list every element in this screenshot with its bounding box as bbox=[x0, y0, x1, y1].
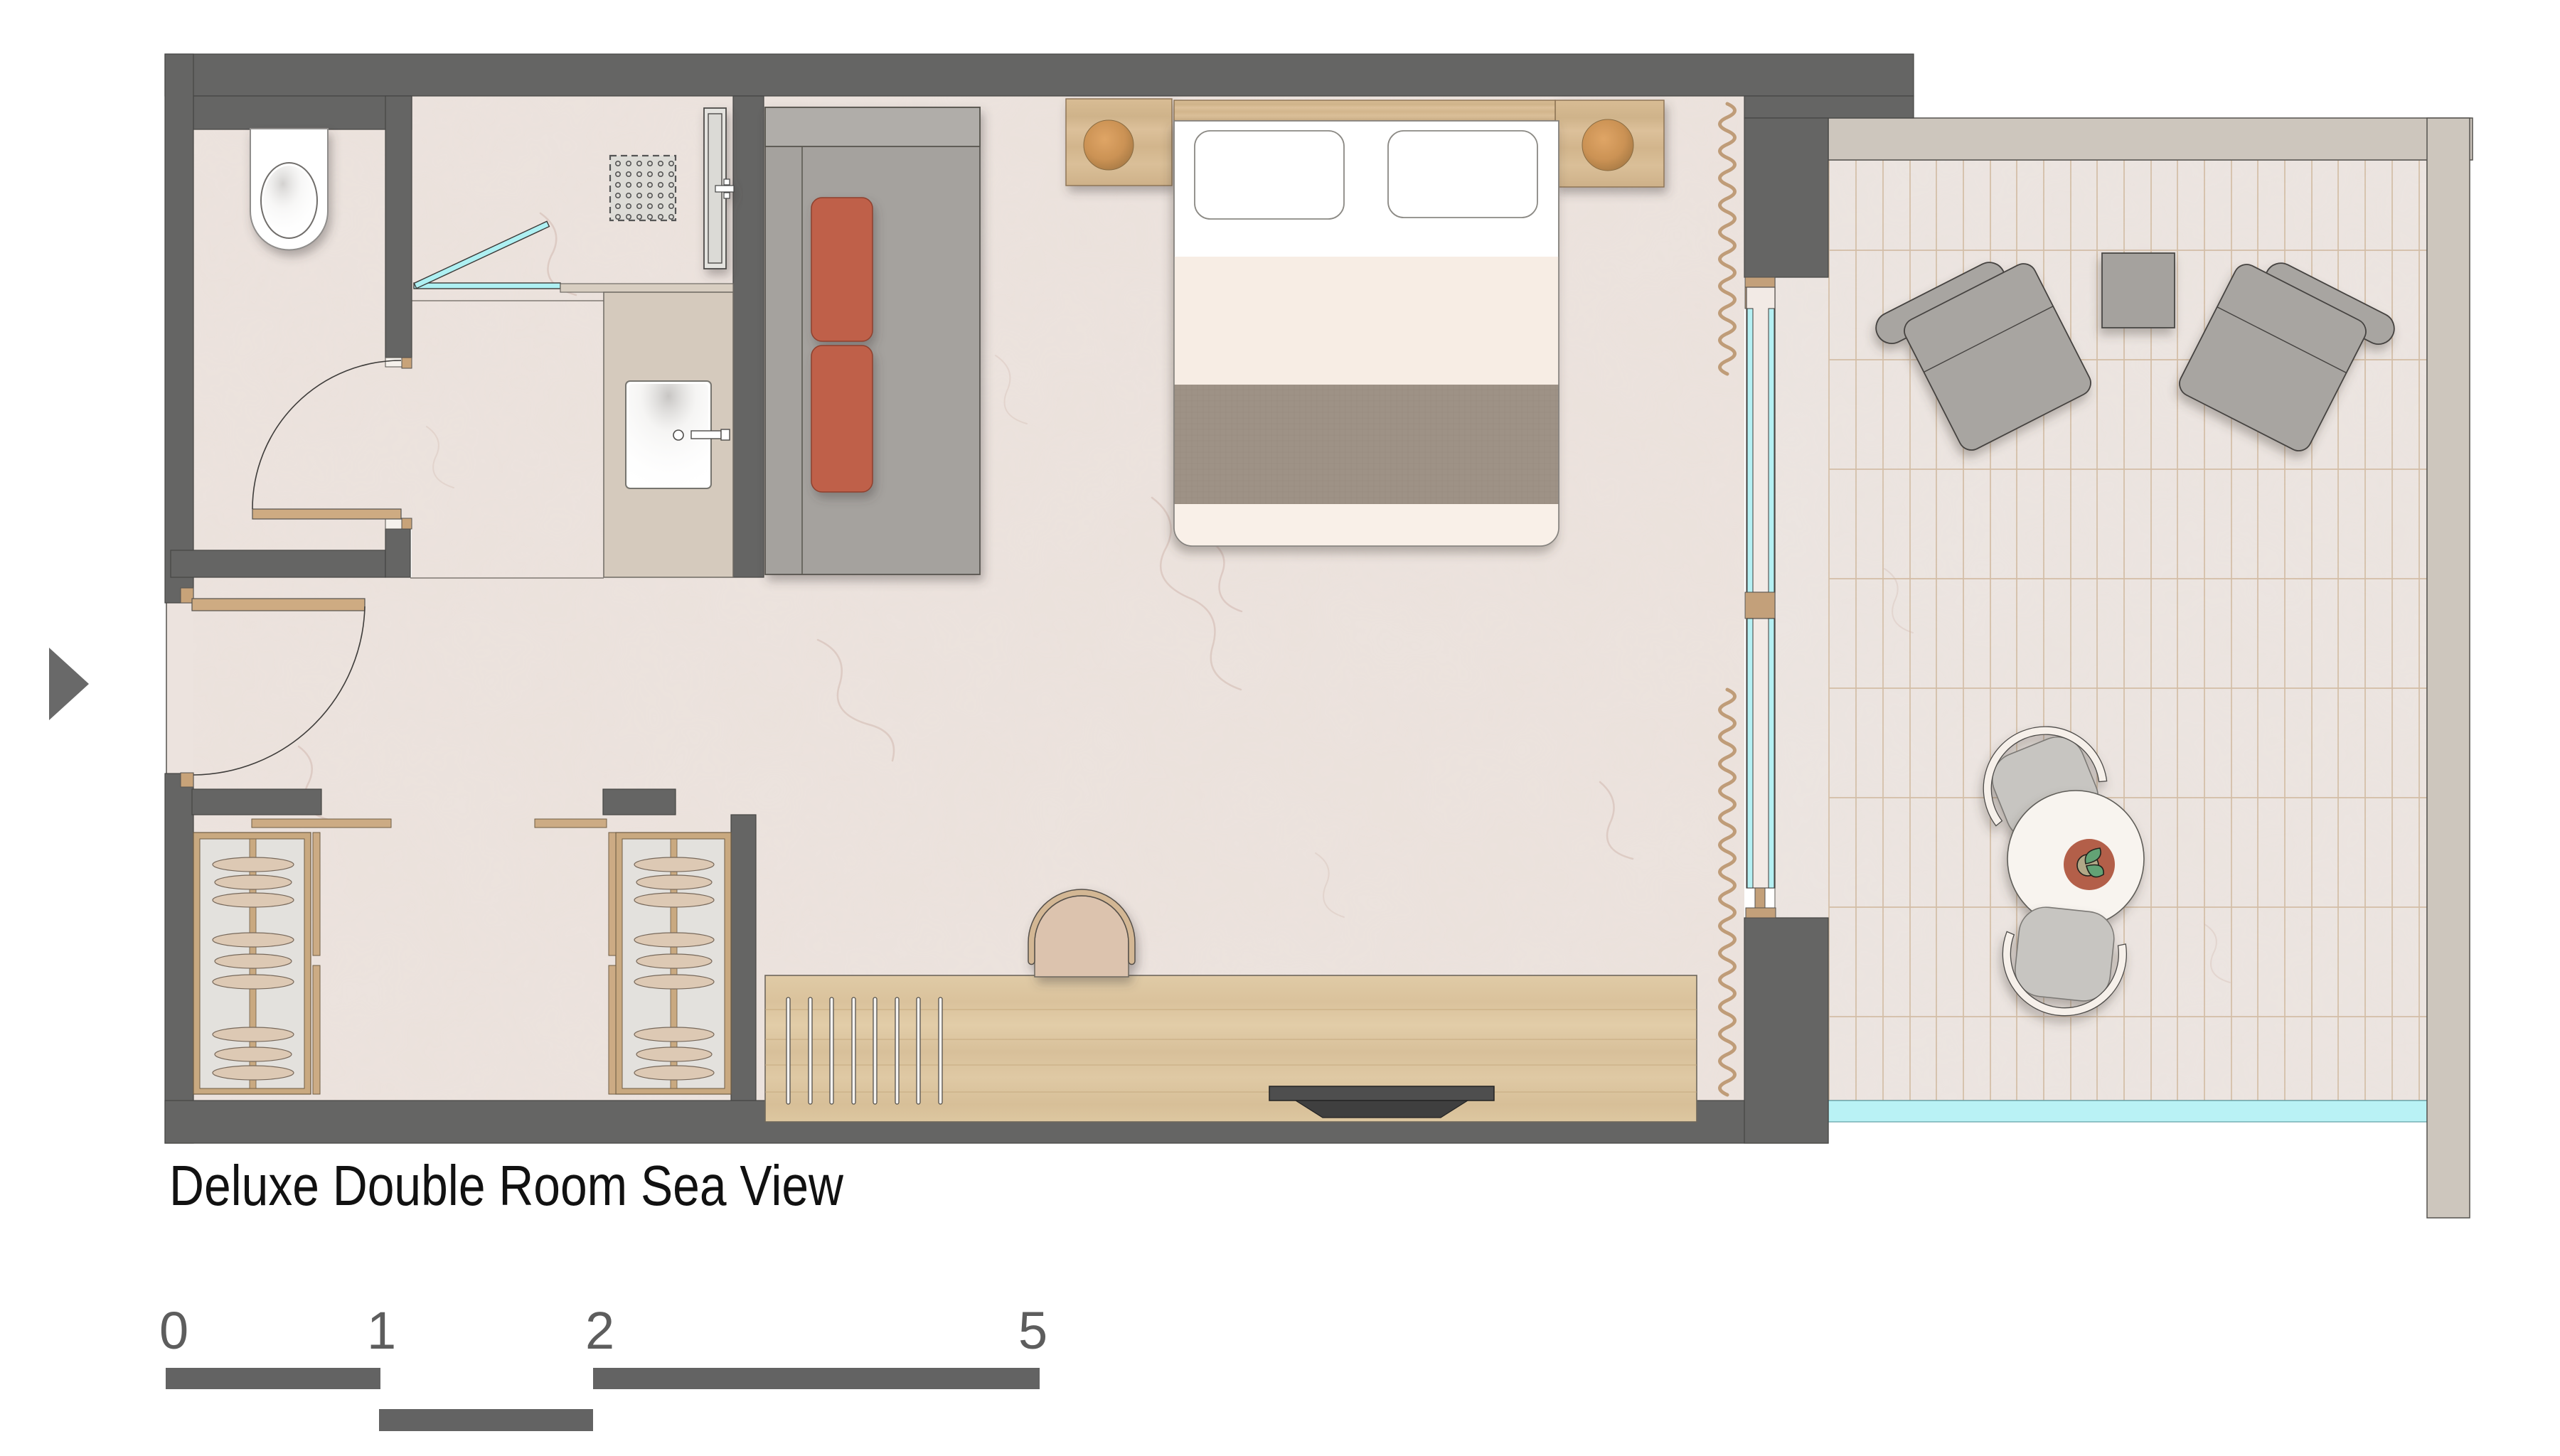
svg-text:5: 5 bbox=[1018, 1301, 1047, 1360]
svg-text:Deluxe Double Room Sea View: Deluxe Double Room Sea View bbox=[169, 1154, 843, 1217]
svg-text:1: 1 bbox=[367, 1301, 396, 1360]
svg-text:2: 2 bbox=[585, 1301, 614, 1360]
svg-text:0: 0 bbox=[159, 1301, 188, 1360]
